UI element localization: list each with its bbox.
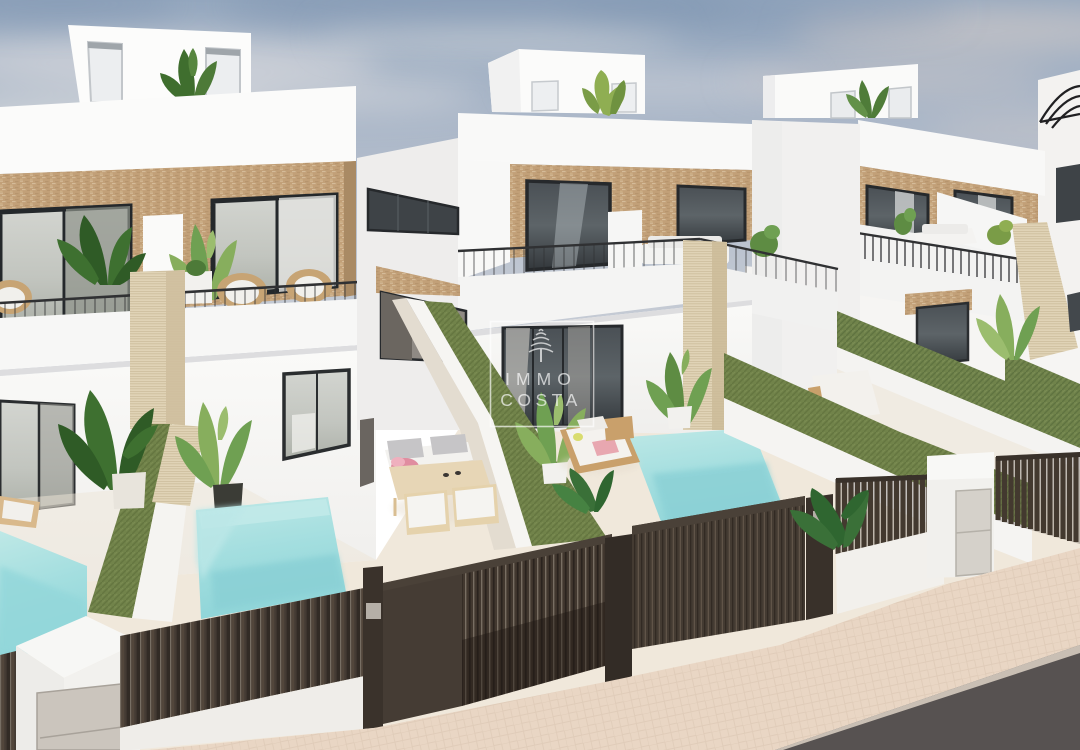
svg-text:COSTA: COSTA <box>500 390 582 410</box>
svg-text:IMMO: IMMO <box>505 369 577 389</box>
